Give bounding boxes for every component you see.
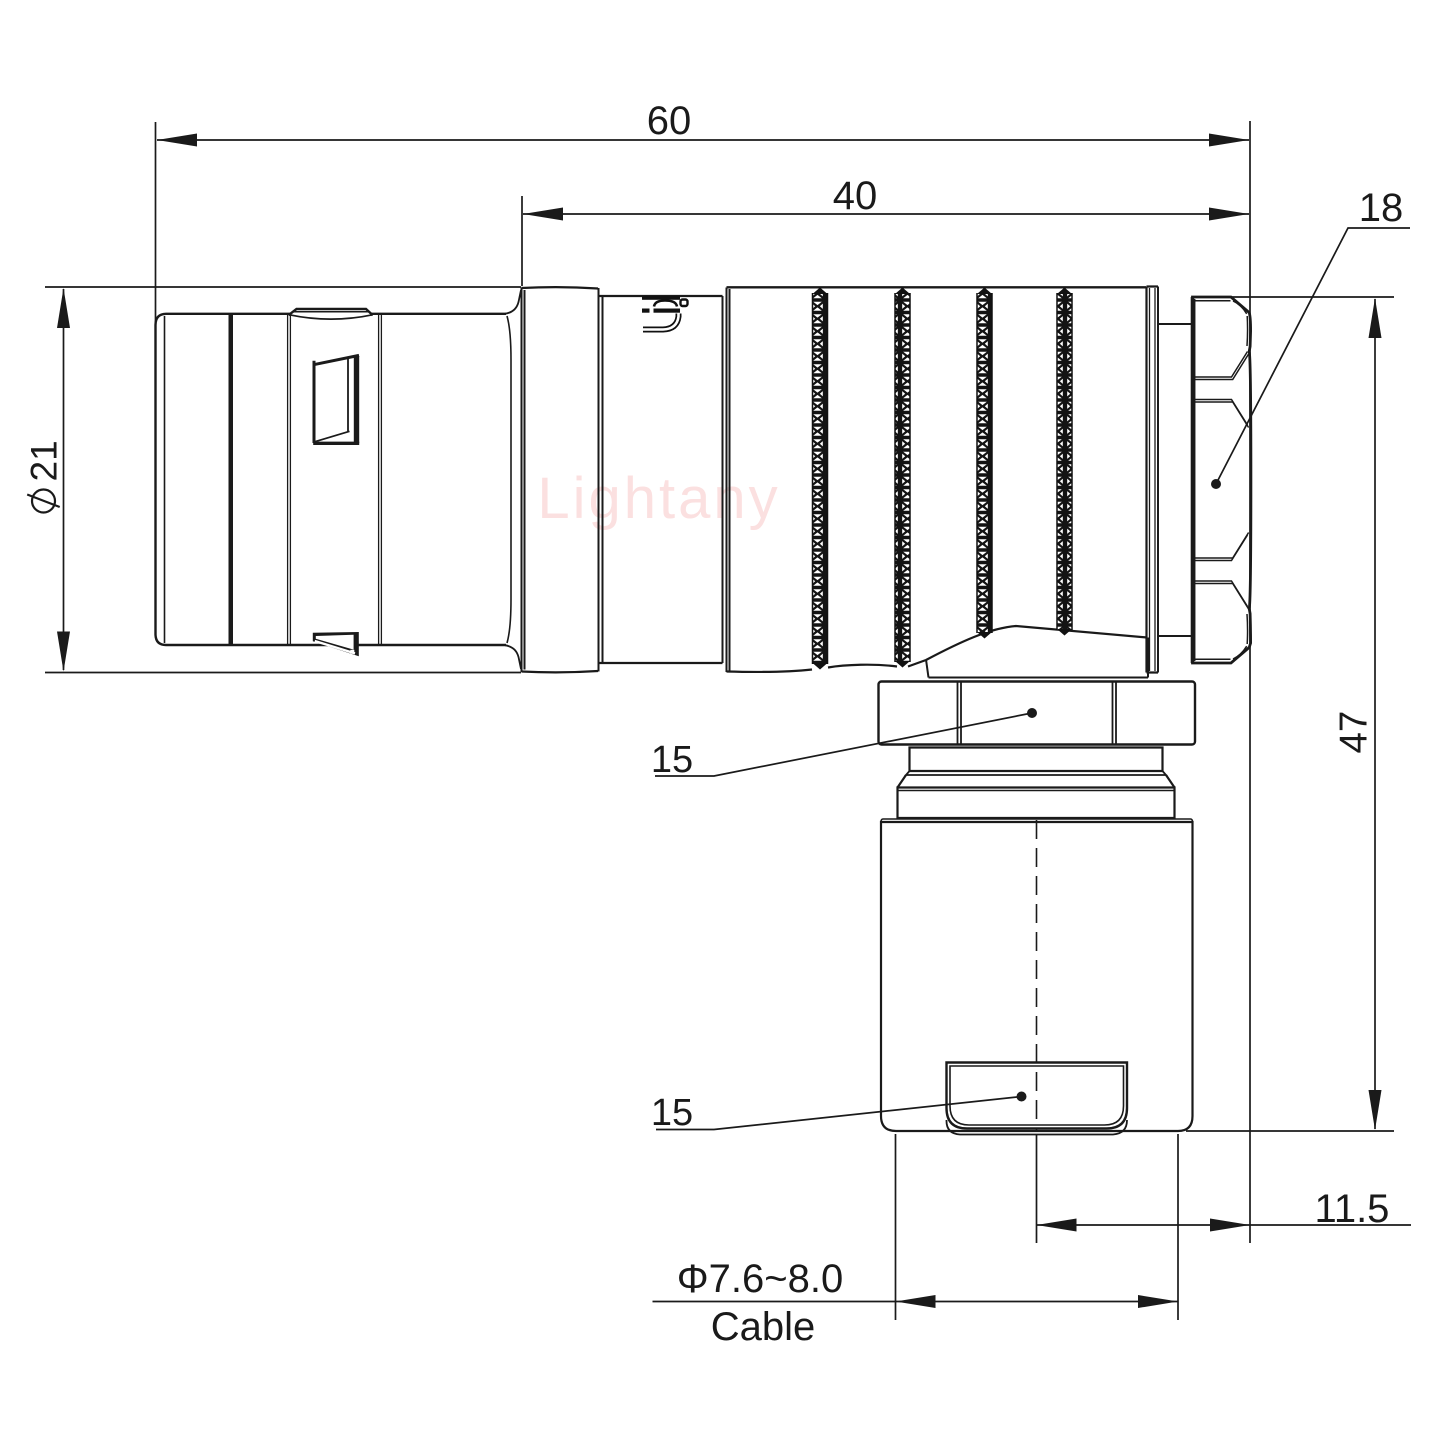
svg-text:15: 15 [651, 739, 693, 781]
svg-text:21: 21 [24, 440, 65, 481]
svg-text:Lightany: Lightany [537, 466, 780, 531]
svg-text:40: 40 [833, 174, 878, 218]
svg-text:Cable: Cable [711, 1305, 816, 1349]
svg-text:15: 15 [651, 1092, 693, 1134]
svg-text:60: 60 [647, 99, 692, 143]
svg-text:Φ7.6~8.0: Φ7.6~8.0 [677, 1257, 843, 1301]
svg-text:11.5: 11.5 [1315, 1187, 1390, 1231]
svg-text:47: 47 [1333, 711, 1376, 754]
svg-text:18: 18 [1359, 186, 1404, 230]
